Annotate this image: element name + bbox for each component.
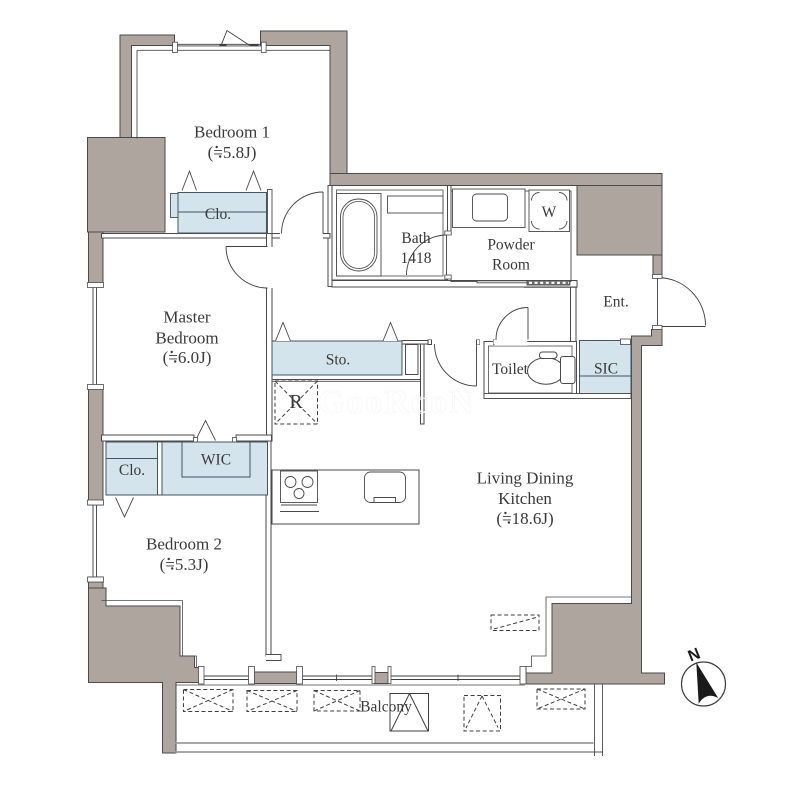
svg-text:GooRooN: GooRooN (318, 384, 476, 421)
svg-text:Ent.: Ent. (603, 294, 628, 311)
svg-text:Bedroom 1: Bedroom 1 (194, 123, 270, 142)
svg-text:WIC: WIC (201, 452, 231, 469)
svg-text:Sto.: Sto. (326, 352, 351, 369)
svg-text:Toilet: Toilet (492, 361, 529, 378)
svg-text:SIC: SIC (594, 361, 618, 378)
svg-text:Balcony: Balcony (360, 699, 412, 716)
svg-text:Bath: Bath (401, 230, 431, 247)
svg-text:Clo.: Clo. (205, 206, 231, 223)
svg-text:(=5.3J): (=5.3J) (160, 555, 209, 574)
svg-text:(=5.8J): (=5.8J) (208, 143, 257, 162)
svg-text:Bedroom 2: Bedroom 2 (146, 535, 222, 554)
svg-text:Master: Master (163, 308, 211, 327)
svg-text:Clo.: Clo. (119, 462, 145, 479)
svg-text:W: W (542, 204, 557, 221)
svg-text:Room: Room (492, 257, 530, 274)
svg-text:Living Dining: Living Dining (477, 469, 574, 488)
svg-text:1418: 1418 (401, 250, 432, 267)
svg-text:(=18.6J): (=18.6J) (496, 509, 553, 528)
svg-text:Bedroom: Bedroom (155, 329, 218, 348)
svg-text:Powder: Powder (487, 237, 535, 254)
svg-text:Kitchen: Kitchen (498, 489, 552, 508)
svg-text:(=6.0J): (=6.0J) (163, 348, 212, 367)
svg-text:R: R (289, 391, 303, 413)
